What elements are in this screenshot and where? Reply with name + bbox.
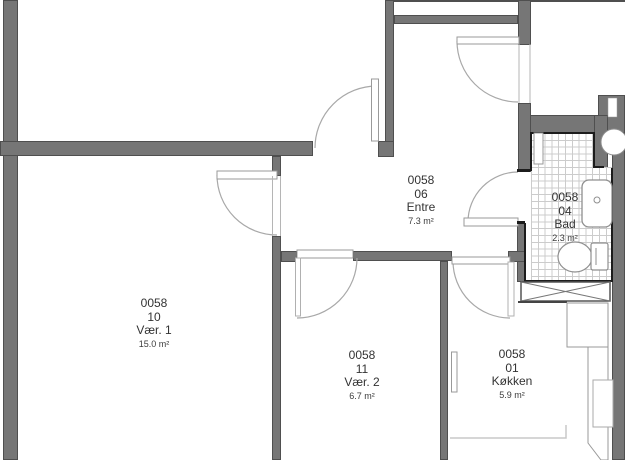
- room-name: Vær. 2: [302, 376, 422, 390]
- door-swing-arc: [457, 41, 518, 102]
- toilet-bowl: [558, 242, 592, 272]
- kitchen-cabinet: [567, 303, 608, 347]
- room-code: 0058: [505, 191, 625, 205]
- door-threshold: [452, 257, 510, 264]
- door-swing-arc: [217, 175, 277, 235]
- door-swing-arc: [297, 258, 357, 318]
- room-number: 04: [505, 205, 625, 219]
- kitchen-floor-line: [450, 425, 566, 438]
- pipe-shaft-disc: [601, 129, 625, 155]
- room-name: Bad: [505, 218, 625, 232]
- door-leaf: [457, 37, 519, 44]
- room-label-koekken: 0058 01 Køkken 5.9 m²: [452, 348, 572, 400]
- room-code: 0058: [361, 174, 481, 188]
- room-code: 0058: [452, 348, 572, 362]
- room-name: Vær. 1: [94, 324, 214, 338]
- door-swing-arc: [453, 261, 510, 318]
- door-leaf: [296, 258, 301, 316]
- room-area: 15.0 m²: [94, 339, 214, 349]
- toilet-tank: [591, 243, 608, 270]
- door-threshold: [297, 250, 353, 258]
- room-name: Entre: [361, 201, 481, 215]
- room-number: 06: [361, 188, 481, 202]
- room-area: 2.3 m²: [505, 233, 625, 243]
- room-number: 11: [302, 363, 422, 377]
- room-area: 7.3 m²: [361, 216, 481, 226]
- room-label-vaer-1: 0058 10 Vær. 1 15.0 m²: [94, 297, 214, 349]
- room-number: 01: [452, 362, 572, 376]
- kitchen-appliance: [593, 380, 613, 427]
- room-label-entre: 0058 06 Entre 7.3 m²: [361, 174, 481, 226]
- room-number: 10: [94, 311, 214, 325]
- door-leaf: [508, 262, 514, 316]
- door-leaf: [372, 79, 379, 141]
- wall-vent-slot: [608, 98, 617, 117]
- door-swing-arc: [315, 86, 377, 148]
- room-code: 0058: [94, 297, 214, 311]
- door-leaf: [217, 171, 277, 179]
- room-code: 0058: [302, 349, 422, 363]
- bathroom-wall-accent: [517, 169, 530, 172]
- room-label-vaer-2: 0058 11 Vær. 2 6.7 m²: [302, 349, 422, 401]
- room-name: Køkken: [452, 375, 572, 389]
- floor-plan: 0058 10 Vær. 1 15.0 m² 0058 11 Vær. 2 6.…: [0, 0, 625, 460]
- room-area: 6.7 m²: [302, 391, 422, 401]
- room-area: 5.9 m²: [452, 390, 572, 400]
- radiator: [534, 133, 543, 164]
- room-label-bad: 0058 04 Bad 2.3 m²: [505, 191, 625, 243]
